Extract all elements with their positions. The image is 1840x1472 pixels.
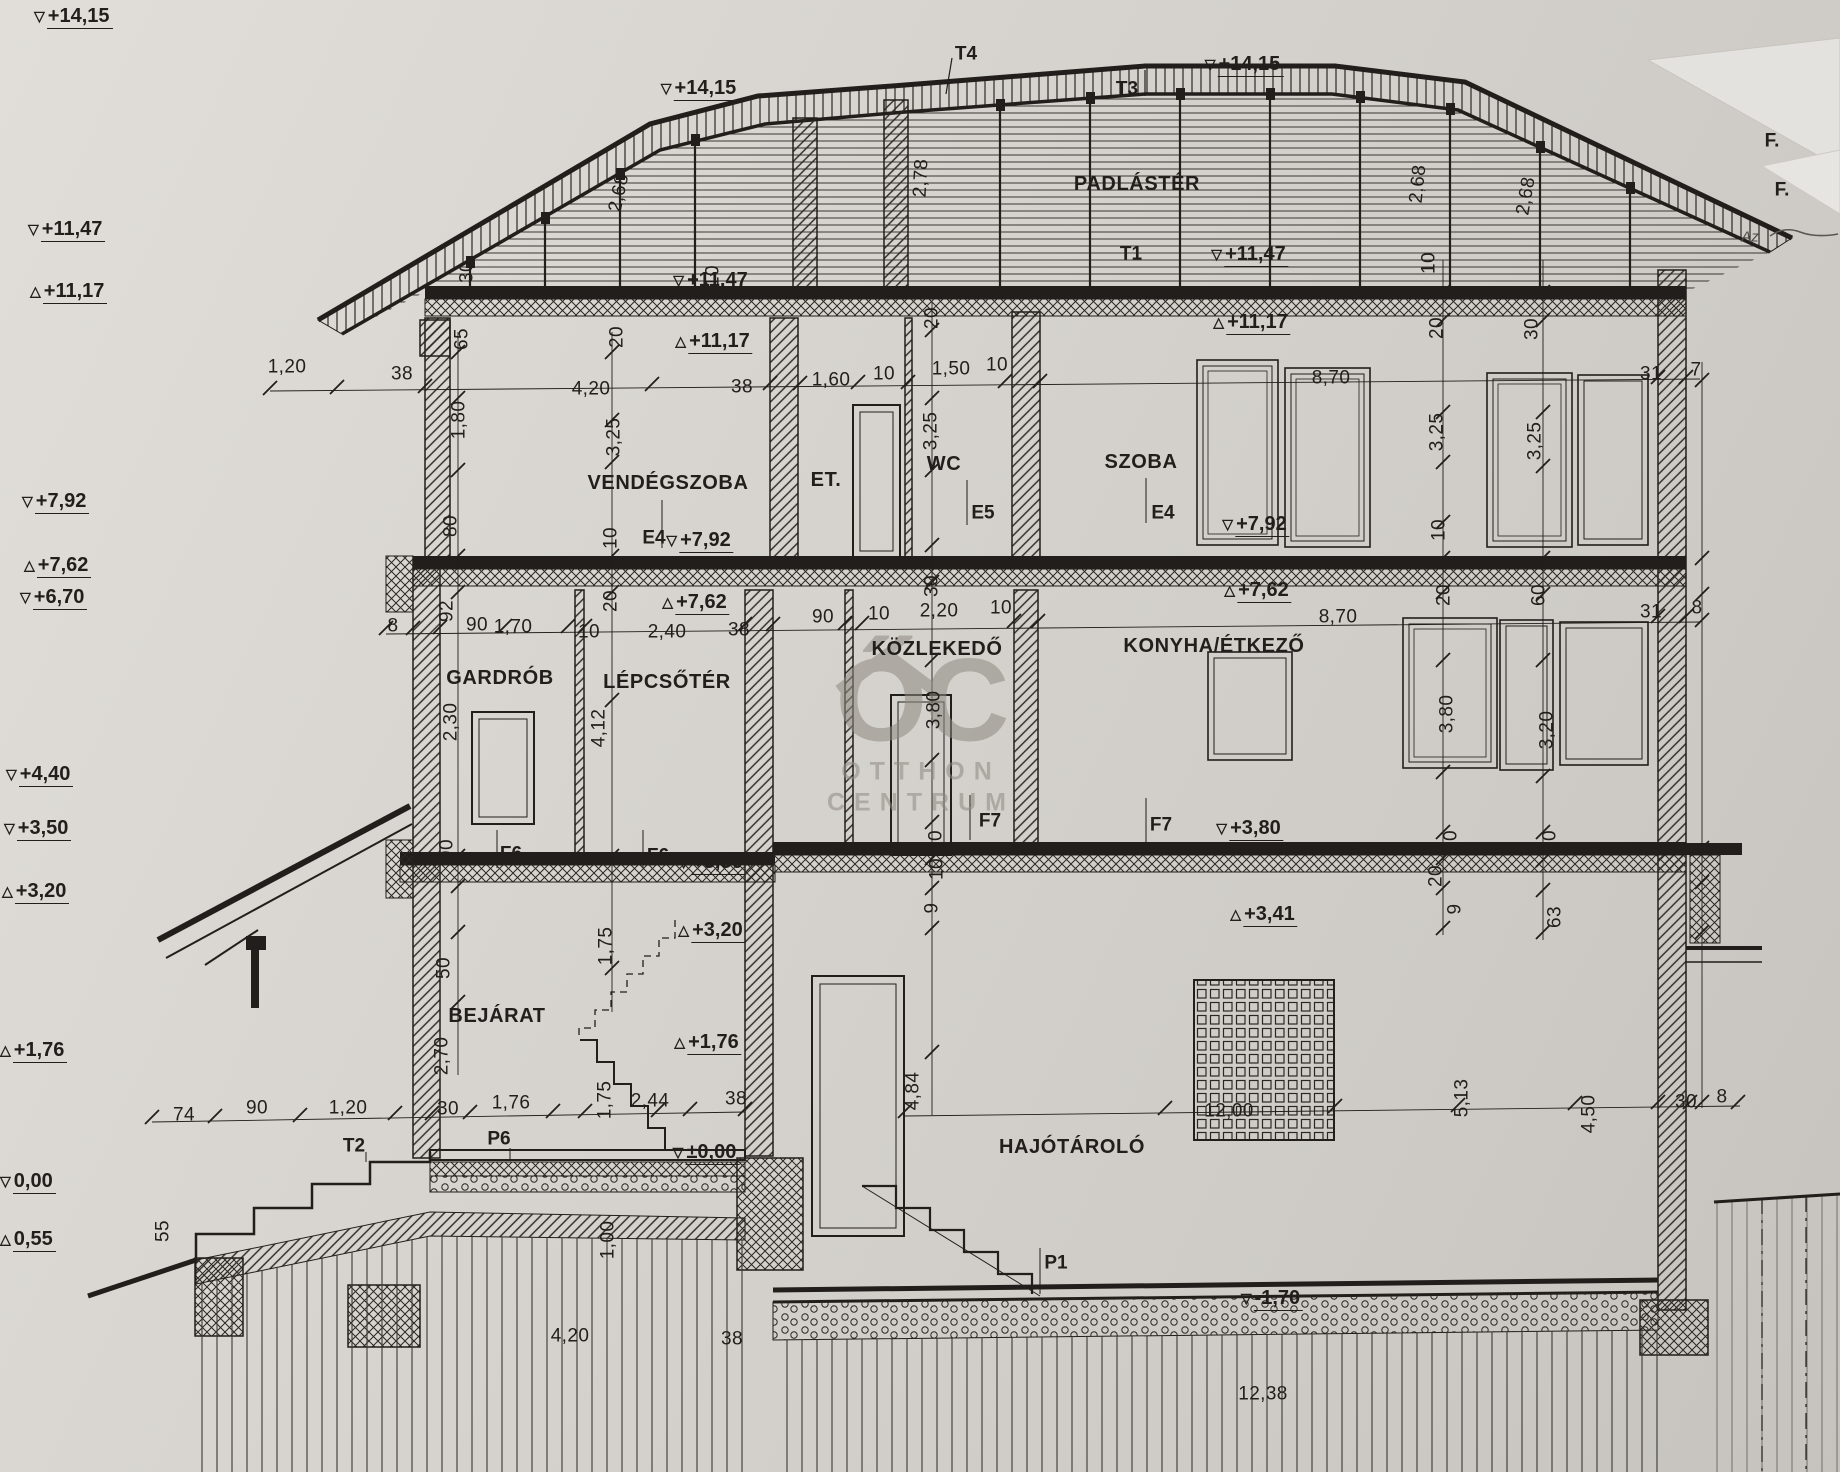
triangle-down-icon: ▽ — [34, 8, 45, 24]
elevation-marker: △+3,20 — [678, 920, 745, 940]
dimension-label: 1,60 — [812, 371, 851, 390]
dimension-label: 8,70 — [1319, 608, 1358, 627]
triangle-down-icon: ▽ — [1222, 516, 1233, 532]
triangle-up-icon: △ — [662, 594, 673, 610]
room-label: GARDRÓB — [446, 668, 554, 688]
dimension-label: 12,38 — [1238, 1385, 1288, 1404]
elevation-marker: △+3,41 — [1230, 904, 1297, 924]
dimension-label: 30 — [437, 1100, 459, 1119]
elevation-marker: ▽+11,47 — [673, 270, 750, 290]
triangle-up-icon: △ — [2, 883, 13, 899]
room-label: ET. — [811, 470, 842, 490]
dimension-label: 4,50 — [1580, 1095, 1599, 1134]
elevation-marker: ▽+7,92 — [1222, 514, 1289, 534]
triangle-up-icon: △ — [675, 333, 686, 349]
dimension-label: 38 — [731, 378, 753, 397]
triangle-down-icon: ▽ — [673, 272, 684, 288]
triangle-down-icon: ▽ — [673, 1144, 684, 1160]
dimension-label: 2,40 — [648, 623, 687, 642]
triangle-down-icon: ▽ — [28, 221, 39, 237]
dimension-label: 7 — [1691, 361, 1702, 380]
dimension-label: 2,70 — [433, 1037, 452, 1076]
reference-label: E4 — [1151, 504, 1174, 523]
elevation-marker: ▽+4,40 — [6, 764, 73, 784]
dimension-label: 12,00 — [1204, 1102, 1254, 1121]
dimension-label: 20 — [927, 830, 946, 852]
triangle-down-icon: ▽ — [6, 766, 17, 782]
room-label: BEJÁRAT — [448, 1006, 545, 1026]
elevation-marker: △+11,17 — [1213, 312, 1290, 332]
room-label: SZOBA — [1105, 452, 1178, 472]
dimension-label: 2,30 — [442, 703, 461, 742]
elevation-marker: ▽±0,00 — [673, 1142, 740, 1162]
dimension-label: 10 — [1442, 830, 1461, 852]
dimension-label: 10 — [1420, 252, 1439, 274]
dimension-label: 1,75 — [597, 927, 616, 966]
dimension-label: 10 — [868, 605, 890, 624]
elevation-marker: ▽0,00 — [0, 1171, 56, 1191]
dimension-label: 2,44 — [631, 1092, 670, 1111]
room-label: HAJÓTÁROLÓ — [999, 1137, 1145, 1157]
dimension-label: 31 — [1640, 603, 1662, 622]
dimension-label: 92 — [438, 600, 457, 622]
dimension-label: 3,25 — [922, 412, 941, 451]
triangle-down-icon: ▽ — [1241, 1290, 1252, 1306]
triangle-up-icon: △ — [1224, 582, 1235, 598]
dimension-label: 38 — [728, 621, 750, 640]
dimension-label: 2,68 — [606, 172, 633, 214]
dimension-label: 60 — [1530, 584, 1549, 606]
dimension-label: 10 — [928, 858, 947, 880]
dimension-label: 20 — [1427, 865, 1446, 887]
reference-label: T3 — [1116, 80, 1138, 99]
elevation-marker: ▽+3,80 — [1216, 818, 1283, 838]
elevation-marker: ▽+6,70 — [20, 587, 87, 607]
dimension-label: 9 — [1446, 904, 1465, 915]
dimension-label: 65 — [453, 328, 472, 350]
handwritten-note: Az — [1741, 230, 1759, 245]
triangle-down-icon: ▽ — [1205, 56, 1216, 72]
triangle-up-icon: △ — [1213, 314, 1224, 330]
triangle-down-icon: ▽ — [0, 1173, 11, 1189]
dimension-label: 31 — [1640, 365, 1662, 384]
dimension-label: 8 — [1717, 1088, 1728, 1107]
elevation-marker: △+11,17 — [675, 331, 752, 351]
dimension-label: 1,00 — [599, 1221, 618, 1260]
reference-label: F. — [1765, 132, 1780, 151]
elevation-marker: △+1,76 — [674, 1032, 741, 1052]
dimension-label: 63 — [1546, 906, 1565, 928]
triangle-down-icon: ▽ — [4, 820, 15, 836]
elevation-marker: ▽-1,70 — [1241, 1288, 1303, 1308]
elevation-marker: ▽+11,47 — [28, 219, 105, 239]
triangle-up-icon: △ — [678, 922, 689, 938]
dimension-label: 90 — [246, 1099, 268, 1118]
dimension-label: 1,20 — [329, 1099, 368, 1118]
blueprint-page: ŐC OTTHON CENTRUM PADLÁSTÉRVENDÉGSZOBAET… — [0, 0, 1840, 1472]
elevation-marker: △0,55 — [0, 1229, 56, 1249]
reference-label: F6 — [500, 845, 522, 864]
dimension-label: 30 — [1541, 830, 1560, 852]
room-label: KONYHA/ÉTKEZŐ — [1123, 636, 1304, 656]
dimension-label: 8 — [1692, 599, 1703, 618]
reference-label: T2 — [343, 1137, 365, 1156]
dimension-label: 3,80 — [1438, 695, 1457, 734]
dimension-label: 3,20 — [1538, 711, 1557, 750]
dimension-label: 10 — [602, 527, 621, 549]
room-label: PADLÁSTÉR — [1074, 174, 1200, 194]
reference-label: F7 — [1150, 816, 1172, 835]
elevation-marker: ▽+11,47 — [1211, 244, 1288, 264]
dimension-label: 1,75 — [596, 1081, 615, 1120]
reference-label: F6 — [647, 847, 669, 866]
dimension-label: 20 — [608, 326, 627, 348]
dimension-label: 4,12 — [590, 709, 609, 748]
elevation-marker: △+7,62 — [1224, 580, 1291, 600]
reference-label: P1 — [1044, 1254, 1067, 1273]
reference-label: T1 — [1120, 245, 1142, 264]
elevation-marker: ▽+14,15 — [34, 6, 113, 26]
elevation-marker: △+1,76 — [0, 1040, 67, 1060]
triangle-down-icon: ▽ — [678, 854, 689, 870]
dimension-label: 1,50 — [932, 360, 971, 379]
dimension-label: 74 — [173, 1106, 195, 1125]
dimension-label: 8,70 — [1312, 369, 1351, 388]
elevation-marker: ▽+7,92 — [22, 491, 89, 511]
dimension-label: 5,13 — [1453, 1079, 1472, 1118]
dimension-label: 4,20 — [572, 380, 611, 399]
triangle-down-icon: ▽ — [22, 493, 33, 509]
reference-label: T4 — [955, 45, 977, 64]
elevation-marker: ▽+14,15 — [661, 78, 740, 98]
dimension-label: 4,84 — [904, 1072, 923, 1111]
dimension-label: 10 — [990, 599, 1012, 618]
dimension-label: 10 — [1430, 519, 1449, 541]
triangle-down-icon: ▽ — [661, 80, 672, 96]
dimension-label: 20 — [1428, 317, 1447, 339]
dimension-label: 8 — [388, 617, 399, 636]
room-label: VENDÉGSZOBA — [587, 473, 748, 493]
triangle-up-icon: △ — [24, 557, 35, 573]
dimension-label: 30 — [1523, 318, 1542, 340]
triangle-up-icon: △ — [0, 1231, 11, 1247]
dimension-label: 90 — [812, 608, 834, 627]
dimension-label: 1,70 — [494, 618, 533, 637]
dimension-label: 30 — [923, 575, 942, 597]
dimension-label: 10 — [873, 365, 895, 384]
dimension-label: 2,78 — [911, 158, 932, 198]
triangle-up-icon: △ — [0, 1042, 11, 1058]
triangle-down-icon: ▽ — [20, 589, 31, 605]
dimension-label: 2,68 — [1407, 164, 1430, 204]
dimension-label: 20 — [602, 590, 621, 612]
room-label: LÉPCSŐTÉR — [603, 672, 731, 692]
dimension-label: 30 — [1675, 1093, 1697, 1112]
dimension-label: 55 — [154, 1220, 173, 1242]
dimension-label: 9 — [923, 903, 942, 914]
dimension-label: 4,20 — [551, 1327, 590, 1346]
dimension-label: 38 — [725, 1090, 747, 1109]
triangle-up-icon: △ — [674, 1034, 685, 1050]
dimension-label: 30 — [458, 261, 477, 283]
room-label: WC — [927, 454, 962, 474]
dimension-label: 50 — [435, 957, 454, 979]
elevation-marker: △+11,17 — [30, 281, 107, 301]
label-layer: PADLÁSTÉRVENDÉGSZOBAET.WCSZOBAGARDRÓBLÉP… — [0, 0, 1840, 1472]
dimension-label: 3,25 — [1526, 422, 1545, 461]
dimension-label: 80 — [442, 515, 461, 537]
elevation-marker: △+7,62 — [662, 592, 729, 612]
triangle-down-icon: ▽ — [1216, 820, 1227, 836]
reference-label: E5 — [971, 504, 994, 523]
dimension-label: 20 — [923, 307, 942, 329]
elevation-marker: ▽+14,15 — [1205, 54, 1284, 74]
dimension-label: 1,76 — [492, 1094, 531, 1113]
triangle-up-icon: △ — [30, 283, 41, 299]
elevation-marker: ▽+3,50 — [678, 852, 745, 872]
dimension-label: 1,20 — [268, 358, 307, 377]
dimension-label: 20 — [1435, 584, 1454, 606]
room-label: KÖZLEKEDŐ — [872, 639, 1003, 659]
reference-label: F. — [1775, 181, 1790, 200]
dimension-label: 3,25 — [1428, 413, 1447, 452]
dimension-label: 10 — [986, 356, 1008, 375]
triangle-up-icon: △ — [1230, 906, 1241, 922]
dimension-label: 38 — [721, 1330, 743, 1349]
dimension-label: 2,20 — [920, 602, 959, 621]
dimension-label: 90 — [466, 616, 488, 635]
dimension-label: 2,68 — [1513, 175, 1538, 216]
reference-label: E4 — [642, 529, 665, 548]
reference-label: P6 — [487, 1130, 510, 1149]
dimension-label: 10 — [578, 623, 600, 642]
dimension-label: 90 — [438, 839, 457, 861]
triangle-down-icon: ▽ — [666, 532, 677, 548]
elevation-marker: △+7,62 — [24, 555, 91, 575]
elevation-marker: ▽+7,92 — [666, 530, 733, 550]
reference-label: F7 — [979, 812, 1001, 831]
dimension-label: 38 — [391, 365, 413, 384]
dimension-label: 3,25 — [605, 418, 624, 457]
dimension-label: 1,80 — [450, 401, 469, 440]
elevation-marker: ▽+3,50 — [4, 818, 71, 838]
dimension-label: 3,80 — [925, 691, 944, 730]
elevation-marker: △+3,20 — [2, 881, 69, 901]
triangle-down-icon: ▽ — [1211, 246, 1222, 262]
